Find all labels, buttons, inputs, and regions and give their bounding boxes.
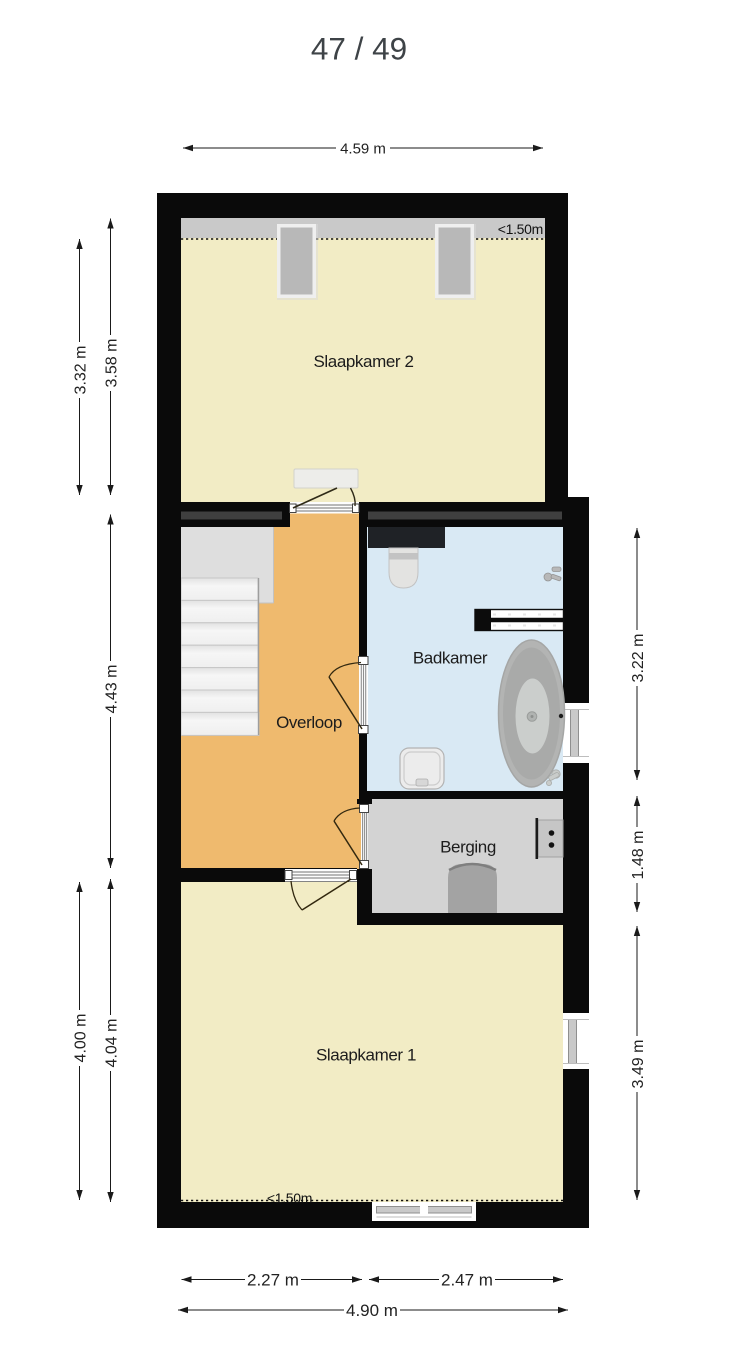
svg-text:4.43 m: 4.43 m	[103, 665, 120, 714]
svg-text:2.47 m: 2.47 m	[441, 1271, 493, 1290]
svg-text:1.48 m: 1.48 m	[630, 831, 647, 880]
svg-text:3.22 m: 3.22 m	[630, 634, 647, 683]
svg-text:4.59 m: 4.59 m	[340, 141, 386, 158]
svg-text:Slaapkamer 2: Slaapkamer 2	[313, 352, 413, 371]
svg-text:4.90 m: 4.90 m	[346, 1301, 398, 1320]
svg-text:3.32 m: 3.32 m	[72, 346, 89, 395]
svg-text:4.04 m: 4.04 m	[103, 1019, 120, 1068]
svg-text:Slaapkamer 1: Slaapkamer 1	[316, 1046, 416, 1065]
svg-text:Berging: Berging	[440, 838, 496, 857]
svg-text:4.00 m: 4.00 m	[72, 1014, 89, 1063]
svg-text:Badkamer: Badkamer	[413, 649, 488, 668]
svg-text:3.49 m: 3.49 m	[630, 1040, 647, 1089]
svg-text:Overloop: Overloop	[276, 713, 342, 732]
svg-text:2.27 m: 2.27 m	[247, 1271, 299, 1290]
svg-text:<1.50m: <1.50m	[498, 221, 543, 237]
svg-text:3.58 m: 3.58 m	[103, 339, 120, 388]
svg-text:<1.50m: <1.50m	[267, 1190, 312, 1206]
svg-text:47 / 49: 47 / 49	[311, 31, 407, 67]
